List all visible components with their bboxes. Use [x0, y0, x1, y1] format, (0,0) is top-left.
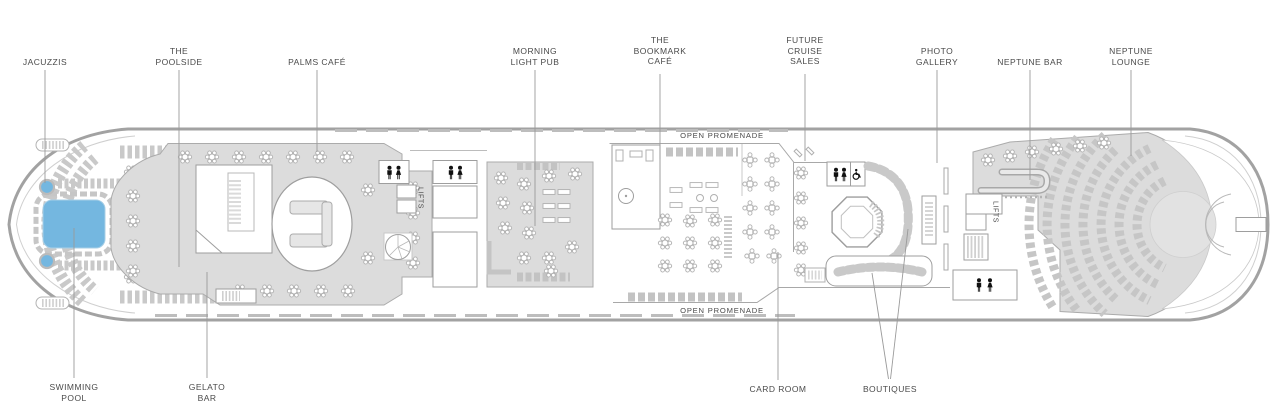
label-lifts-right: LIFTS — [989, 201, 1000, 223]
buffet-oval — [272, 177, 352, 271]
jacuzzi-shape — [40, 254, 54, 268]
label-open-promenade-bottom: OPEN PROMENADE — [680, 306, 764, 317]
restroom-box — [433, 161, 477, 184]
label-the-bookmark-cafe: THE BOOKMARK CAFÉ — [634, 35, 687, 67]
label-neptune-bar: NEPTUNE BAR — [997, 57, 1062, 68]
restroom-box — [379, 161, 409, 184]
label-photo-gallery: PHOTO GALLERY — [916, 46, 958, 67]
photo-rack — [944, 168, 948, 194]
restroom-box — [953, 270, 1017, 300]
jacuzzi-shape — [40, 180, 54, 194]
lift-shaft — [966, 214, 986, 230]
label-gelato-bar: GELATO BAR — [189, 382, 225, 403]
label-lifts-left: LIFTS — [414, 187, 425, 209]
photo-rack — [944, 206, 948, 232]
ship-deck-plan: JACUZZIS THE POOLSIDE PALMS CAFÉ MORNING… — [0, 0, 1277, 420]
label-future-cruise-sales: FUTURE CRUISE SALES — [786, 35, 823, 67]
photo-rack — [944, 244, 948, 270]
label-card-room: CARD ROOM — [750, 384, 807, 395]
label-the-poolside: THE POOLSIDE — [155, 46, 202, 67]
label-morning-light-pub: MORNING LIGHT PUB — [511, 46, 560, 67]
label-open-promenade-top: OPEN PROMENADE — [680, 131, 764, 142]
venue-morning-light-pub — [487, 162, 593, 287]
label-boutiques: BOUTIQUES — [863, 384, 917, 395]
venue-photo-gallery — [944, 168, 948, 270]
label-jacuzzis: JACUZZIS — [23, 57, 67, 68]
label-neptune-lounge: NEPTUNE LOUNGE — [1109, 46, 1153, 67]
atrium-octagon — [832, 197, 882, 247]
label-palms-cafe: PALMS CAFÉ — [288, 57, 346, 68]
label-swimming-pool: SWIMMING POOL — [50, 382, 99, 403]
